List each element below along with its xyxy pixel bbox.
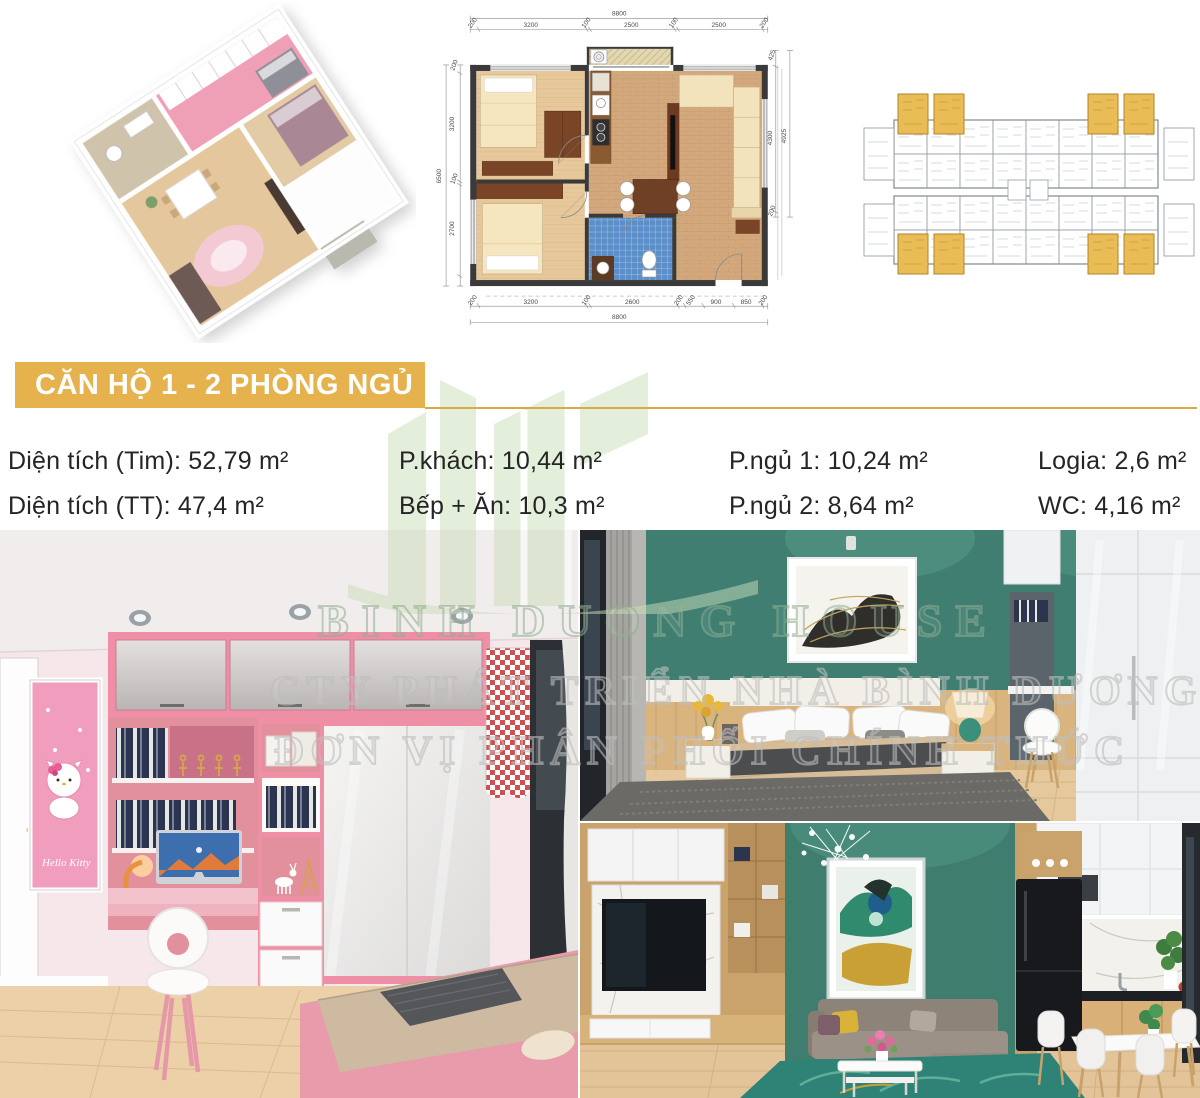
section-banner: CĂN HỘ 1 - 2 PHÒNG NGỦ xyxy=(15,362,425,408)
svg-text:8800: 8800 xyxy=(612,314,627,321)
imac-computer xyxy=(156,830,242,884)
colorful-abstract-art xyxy=(828,859,924,999)
svg-text:6500: 6500 xyxy=(436,169,443,184)
svg-text:200: 200 xyxy=(467,294,479,307)
svg-text:3200: 3200 xyxy=(449,116,456,131)
svg-text:2500: 2500 xyxy=(711,22,726,29)
upper-cabinets xyxy=(108,632,490,718)
svg-text:2700: 2700 xyxy=(449,221,456,236)
window xyxy=(530,640,578,994)
wall-switch xyxy=(846,536,856,550)
svg-text:100: 100 xyxy=(668,16,680,29)
photo-living-room xyxy=(580,823,1200,1098)
floor-plan: 8800 200 3200 100 2500 100 2500 200 200 … xyxy=(426,0,813,352)
tv-wall-unit xyxy=(580,823,785,1045)
building-key-plan xyxy=(858,72,1200,296)
spec-p-ngu-1: P.ngủ 1: 10,24 m² xyxy=(729,447,928,476)
desk-nook xyxy=(108,718,258,930)
photo-master-bedroom xyxy=(580,530,1200,821)
spec-logia: Logia: 2,6 m² xyxy=(1038,447,1187,476)
svg-text:3200: 3200 xyxy=(524,299,539,306)
svg-text:4300: 4300 xyxy=(767,130,774,145)
svg-text:100: 100 xyxy=(449,172,459,185)
svg-text:8800: 8800 xyxy=(612,11,627,18)
svg-text:900: 900 xyxy=(710,299,721,306)
svg-text:4925: 4925 xyxy=(781,128,788,143)
hello-kitty-art: Hello Kitty xyxy=(30,680,100,890)
master-bedroom-scene xyxy=(580,530,1200,821)
spec-dien-tich-tt: Diện tích (TT): 47,4 m² xyxy=(8,492,264,521)
spec-wc: WC: 4,16 m² xyxy=(1038,492,1181,521)
baseboard xyxy=(0,976,108,986)
svg-text:850: 850 xyxy=(741,299,752,306)
svg-text:550: 550 xyxy=(685,294,697,307)
spec-dien-tich-tim: Diện tích (Tim): 52,79 m² xyxy=(8,447,289,476)
svg-text:100: 100 xyxy=(581,294,593,307)
kids-bedroom-scene: Hello Kitty xyxy=(0,530,578,1098)
spec-p-ngu-2: P.ngủ 2: 8,64 m² xyxy=(729,492,914,521)
photo-kids-bedroom: Hello Kitty xyxy=(0,530,578,1098)
svg-text:200: 200 xyxy=(758,16,770,29)
isometric-apartment-render xyxy=(60,2,416,343)
fp-kitchen xyxy=(591,71,611,163)
books xyxy=(266,786,316,828)
shelf-column xyxy=(258,718,324,1000)
abstract-art xyxy=(788,558,916,662)
banner-rule-line xyxy=(425,407,1197,409)
wardrobe xyxy=(1076,530,1200,821)
svg-text:2500: 2500 xyxy=(624,22,639,29)
spec-bep-an: Bếp + Ăn: 10,3 m² xyxy=(399,492,605,521)
svg-text:200: 200 xyxy=(449,59,459,72)
svg-text:100: 100 xyxy=(581,16,593,29)
wardrobe xyxy=(324,718,490,984)
checkered-blind xyxy=(486,648,530,798)
banner-title: CĂN HỘ 1 - 2 PHÒNG NGỦ xyxy=(15,369,413,402)
svg-text:3200: 3200 xyxy=(524,22,539,29)
living-room-scene xyxy=(580,823,1200,1098)
window-curtains xyxy=(580,530,646,821)
svg-text:2600: 2600 xyxy=(625,299,640,306)
hello-kitty-caption: Hello Kitty xyxy=(41,857,91,869)
spec-p-khach: P.khách: 10,44 m² xyxy=(399,447,602,476)
books xyxy=(116,728,168,778)
iso-apartment-group xyxy=(74,9,414,343)
fp-washing-machine xyxy=(591,50,607,64)
svg-text:200: 200 xyxy=(673,294,685,307)
apartment-flyer: 8800 200 3200 100 2500 100 2500 200 200 … xyxy=(0,0,1200,1098)
